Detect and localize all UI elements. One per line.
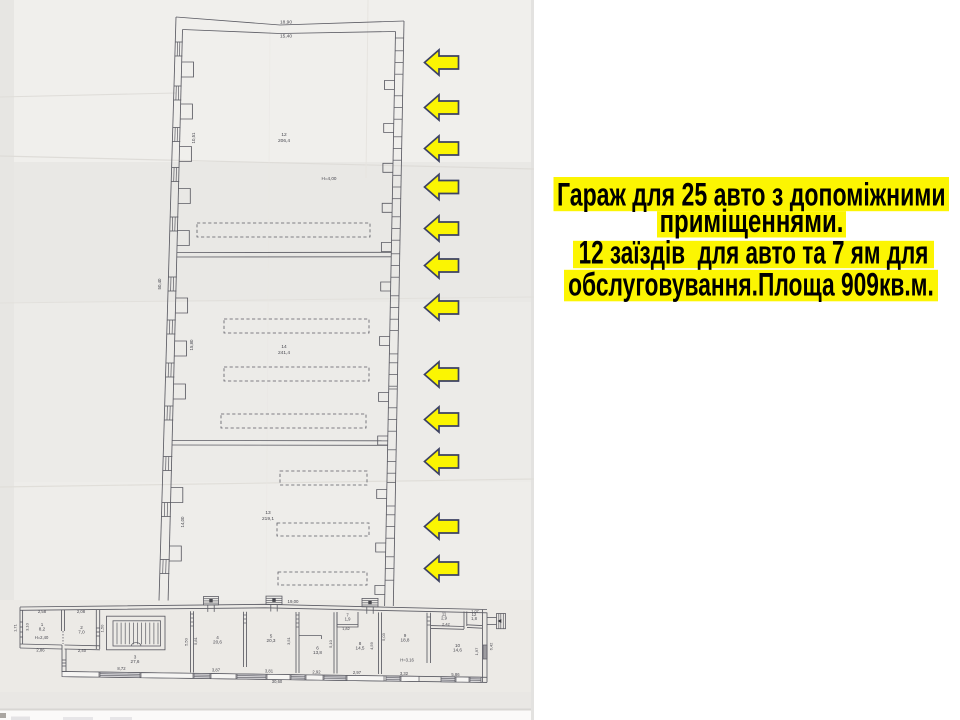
svg-text:4,59: 4,59 xyxy=(369,641,374,650)
svg-text:27,6: 27,6 xyxy=(131,659,140,664)
svg-text:18,90: 18,90 xyxy=(280,20,292,26)
svg-text:219,1: 219,1 xyxy=(262,516,274,522)
svg-text:приміщеннями.: приміщеннями. xyxy=(660,203,844,239)
svg-text:2,92: 2,92 xyxy=(312,669,321,674)
svg-text:8,72: 8,72 xyxy=(117,666,126,671)
svg-text:1,8: 1,8 xyxy=(471,616,477,621)
svg-text:3,81: 3,81 xyxy=(265,668,274,673)
svg-text:1,71: 1,71 xyxy=(13,623,18,632)
svg-text:10,51: 10,51 xyxy=(191,132,196,144)
svg-text:14,00: 14,00 xyxy=(180,516,185,528)
svg-text:3,87: 3,87 xyxy=(212,668,221,673)
svg-text:18,8: 18,8 xyxy=(401,638,410,643)
svg-text:5,81: 5,81 xyxy=(193,636,198,645)
svg-text:19,00: 19,00 xyxy=(288,599,300,604)
svg-text:обслуговування.Площа 909кв.м.: обслуговування.Площа 909кв.м. xyxy=(568,267,934,303)
svg-text:3,51: 3,51 xyxy=(286,636,291,645)
svg-text:14,6: 14,6 xyxy=(453,648,462,653)
svg-text:14,5: 14,5 xyxy=(356,646,365,651)
svg-text:2,97: 2,97 xyxy=(353,670,362,675)
svg-text:1,07: 1,07 xyxy=(471,610,478,614)
svg-text:206,4: 206,4 xyxy=(278,138,290,144)
svg-text:13,8: 13,8 xyxy=(313,650,322,655)
svg-text:5,10: 5,10 xyxy=(328,639,333,648)
svg-text:Н=2,40: Н=2,40 xyxy=(35,635,49,640)
svg-text:2,9: 2,9 xyxy=(441,616,447,621)
svg-text:7,0: 7,0 xyxy=(78,630,85,635)
svg-text:5,03: 5,03 xyxy=(381,632,386,641)
svg-text:5,50: 5,50 xyxy=(184,637,189,646)
svg-text:12 заїздів для авто та 7 ям д: 12 заїздів для авто та 7 ям для xyxy=(579,235,929,271)
svg-text:2,08: 2,08 xyxy=(77,609,86,614)
svg-text:2,86: 2,86 xyxy=(36,648,45,653)
svg-text:2,58: 2,58 xyxy=(38,609,47,614)
svg-text:2,42: 2,42 xyxy=(442,621,451,626)
svg-text:Н=3.16: Н=3.16 xyxy=(400,658,414,663)
svg-text:20,3: 20,3 xyxy=(267,638,276,643)
svg-text:1,82: 1,82 xyxy=(342,626,351,631)
svg-text:2,40: 2,40 xyxy=(78,648,87,653)
svg-text:20,6: 20,6 xyxy=(213,640,222,645)
svg-text:1,97: 1,97 xyxy=(474,647,479,656)
svg-text:Н=4,00: Н=4,00 xyxy=(322,176,337,181)
svg-text:13: 13 xyxy=(265,510,271,516)
svg-text:15,80: 15,80 xyxy=(189,339,194,351)
svg-text:14: 14 xyxy=(281,344,287,350)
svg-text:50,40: 50,40 xyxy=(157,278,162,290)
svg-text:1,50: 1,50 xyxy=(99,624,104,633)
svg-text:1,9: 1,9 xyxy=(345,617,351,622)
svg-text:3,32: 3,32 xyxy=(400,671,409,676)
svg-text:15,40: 15,40 xyxy=(280,34,292,40)
svg-text:241,4: 241,4 xyxy=(278,350,290,356)
svg-text:6,42: 6,42 xyxy=(489,642,494,651)
svg-text:3,10: 3,10 xyxy=(25,622,30,631)
svg-text:8,2: 8,2 xyxy=(39,627,46,632)
svg-text:12: 12 xyxy=(281,132,287,138)
svg-text:5,86: 5,86 xyxy=(451,672,460,677)
